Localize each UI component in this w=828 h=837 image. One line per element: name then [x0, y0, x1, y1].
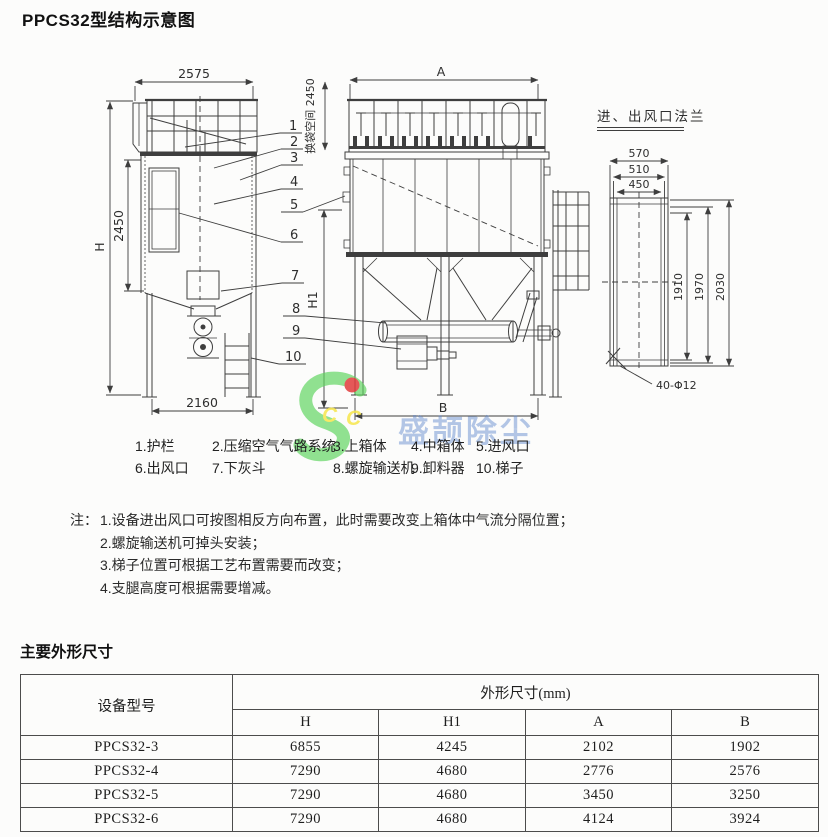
legend-item-10: 10.梯子	[476, 458, 523, 478]
pulse-valves	[353, 113, 541, 146]
structure-schematic: 2575 H 2450 2160	[0, 0, 828, 500]
cell-A: 3450	[526, 784, 672, 808]
cell-B: 3924	[672, 808, 819, 832]
leader-10: 10	[285, 350, 302, 365]
leader-2: 2	[290, 135, 298, 150]
cell-A: 2776	[526, 760, 672, 784]
leader-5: 5	[290, 198, 298, 213]
leader-3: 3	[290, 151, 298, 166]
flange-bolt-holes-label: 40-Φ12	[656, 379, 697, 392]
left-view	[133, 96, 261, 397]
legend-item-5: 5.进风口	[476, 436, 530, 456]
cell-B: 1902	[672, 736, 819, 760]
table-row: PPCS32-3 6855 4245 2102 1902	[21, 736, 819, 760]
cell-B: 3250	[672, 784, 819, 808]
cell-B: 2576	[672, 760, 819, 784]
cell-H: 7290	[233, 760, 379, 784]
table-header-row-1: 设备型号 外形尺寸(mm)	[21, 675, 819, 710]
watermark-monogram-right: C	[346, 407, 362, 430]
col-header-B: B	[672, 710, 819, 736]
cell-H1: 4680	[379, 760, 526, 784]
dim-flange-2030: 2030	[714, 273, 727, 301]
leader-4: 4	[290, 175, 298, 190]
dim-left-body-height: 2450	[111, 210, 126, 242]
leader-9: 9	[292, 324, 300, 339]
note-line-3: 3.梯子位置可根据工艺布置需要而改变；	[100, 554, 574, 577]
inlet-flange-grid	[549, 190, 589, 397]
legend-item-6: 6.出风口	[135, 458, 189, 478]
notes-block: 注： 1.设备进出风口可按图相反方向布置，此时需要改变上箱体中气流分隔位置； 2…	[70, 509, 574, 599]
cell-A: 2102	[526, 736, 672, 760]
cell-model: PPCS32-3	[21, 736, 233, 760]
dim-flange-1910: 1910	[672, 273, 685, 301]
table-row: PPCS32-5 7290 4680 3450 3250	[21, 784, 819, 808]
flange-detail-view: 进、出风口法兰 570 510 450	[597, 109, 734, 392]
dim-left-total-height: H	[92, 242, 107, 251]
note-line-4: 4.支腿高度可根据需要增减。	[100, 577, 574, 600]
dim-flange-1970: 1970	[693, 273, 706, 301]
note-line-1: 1.设备进出风口可按图相反方向布置，此时需要改变上箱体中气流分隔位置；	[100, 509, 574, 532]
legend-item-8: 8.螺旋输送机	[333, 458, 415, 478]
col-header-model: 设备型号	[21, 675, 233, 736]
notes-prefix: 注：	[70, 509, 98, 599]
cell-model: PPCS32-4	[21, 760, 233, 784]
legend-item-7: 7.下灰斗	[212, 458, 266, 478]
dim-flange-570: 570	[629, 147, 650, 160]
discharger-drive	[397, 336, 456, 369]
cell-A: 4124	[526, 808, 672, 832]
cell-model: PPCS32-6	[21, 808, 233, 832]
dim-front-height-H1: H1	[305, 291, 320, 308]
legend-item-3: 3.上箱体	[333, 436, 387, 456]
dim-flange-450: 450	[629, 178, 650, 191]
cell-H: 6855	[233, 736, 379, 760]
legend-item-1: 1.护栏	[135, 436, 175, 456]
watermark-monogram-left: C	[322, 404, 338, 427]
left-view-dimensions: 2575 H 2450 2160	[92, 66, 253, 415]
cell-H: 7290	[233, 808, 379, 832]
col-header-A: A	[526, 710, 672, 736]
dim-front-base-width-B: B	[439, 400, 448, 415]
dim-front-width-A: A	[437, 64, 446, 79]
table-row: PPCS32-6 7290 4680 4124 3924	[21, 808, 819, 832]
col-header-H: H	[233, 710, 379, 736]
dim-left-top-width: 2575	[178, 66, 210, 81]
leader-6: 6	[290, 228, 298, 243]
front-view	[343, 100, 589, 397]
cell-H1: 4680	[379, 808, 526, 832]
flange-view-title: 进、出风口法兰	[597, 109, 706, 124]
leader-1: 1	[289, 119, 297, 134]
cell-H: 7290	[233, 784, 379, 808]
cell-model: PPCS32-5	[21, 784, 233, 808]
legend-item-9: 9.卸料器	[411, 458, 465, 478]
screw-conveyor	[379, 321, 518, 342]
dim-bag-space: 换袋空间 2450	[303, 78, 317, 154]
cell-H1: 4680	[379, 784, 526, 808]
leader-7: 7	[291, 269, 299, 284]
legend-item-4: 4.中箱体	[411, 436, 465, 456]
leader-8: 8	[292, 302, 300, 317]
document-page: PPCS32型结构示意图	[0, 0, 828, 837]
dimensions-section-title: 主要外形尺寸	[20, 640, 113, 662]
dim-flange-510: 510	[629, 163, 650, 176]
col-header-dimensions: 外形尺寸(mm)	[233, 675, 819, 710]
watermark-red-dot	[345, 378, 360, 393]
cell-H1: 4245	[379, 736, 526, 760]
legend-item-2: 2.压缩空气气路系统	[212, 436, 336, 456]
note-line-2: 2.螺旋输送机可掉头安装；	[100, 532, 574, 555]
front-view-dimensions: A 换袋空间 2450 H1 B	[303, 64, 538, 420]
dimensions-table: 设备型号 外形尺寸(mm) H H1 A B PPCS32-3 6855 424…	[20, 674, 819, 832]
dim-left-base-width: 2160	[186, 395, 218, 410]
col-header-H1: H1	[379, 710, 526, 736]
air-tank	[502, 103, 519, 147]
table-row: PPCS32-4 7290 4680 2776 2576	[21, 760, 819, 784]
